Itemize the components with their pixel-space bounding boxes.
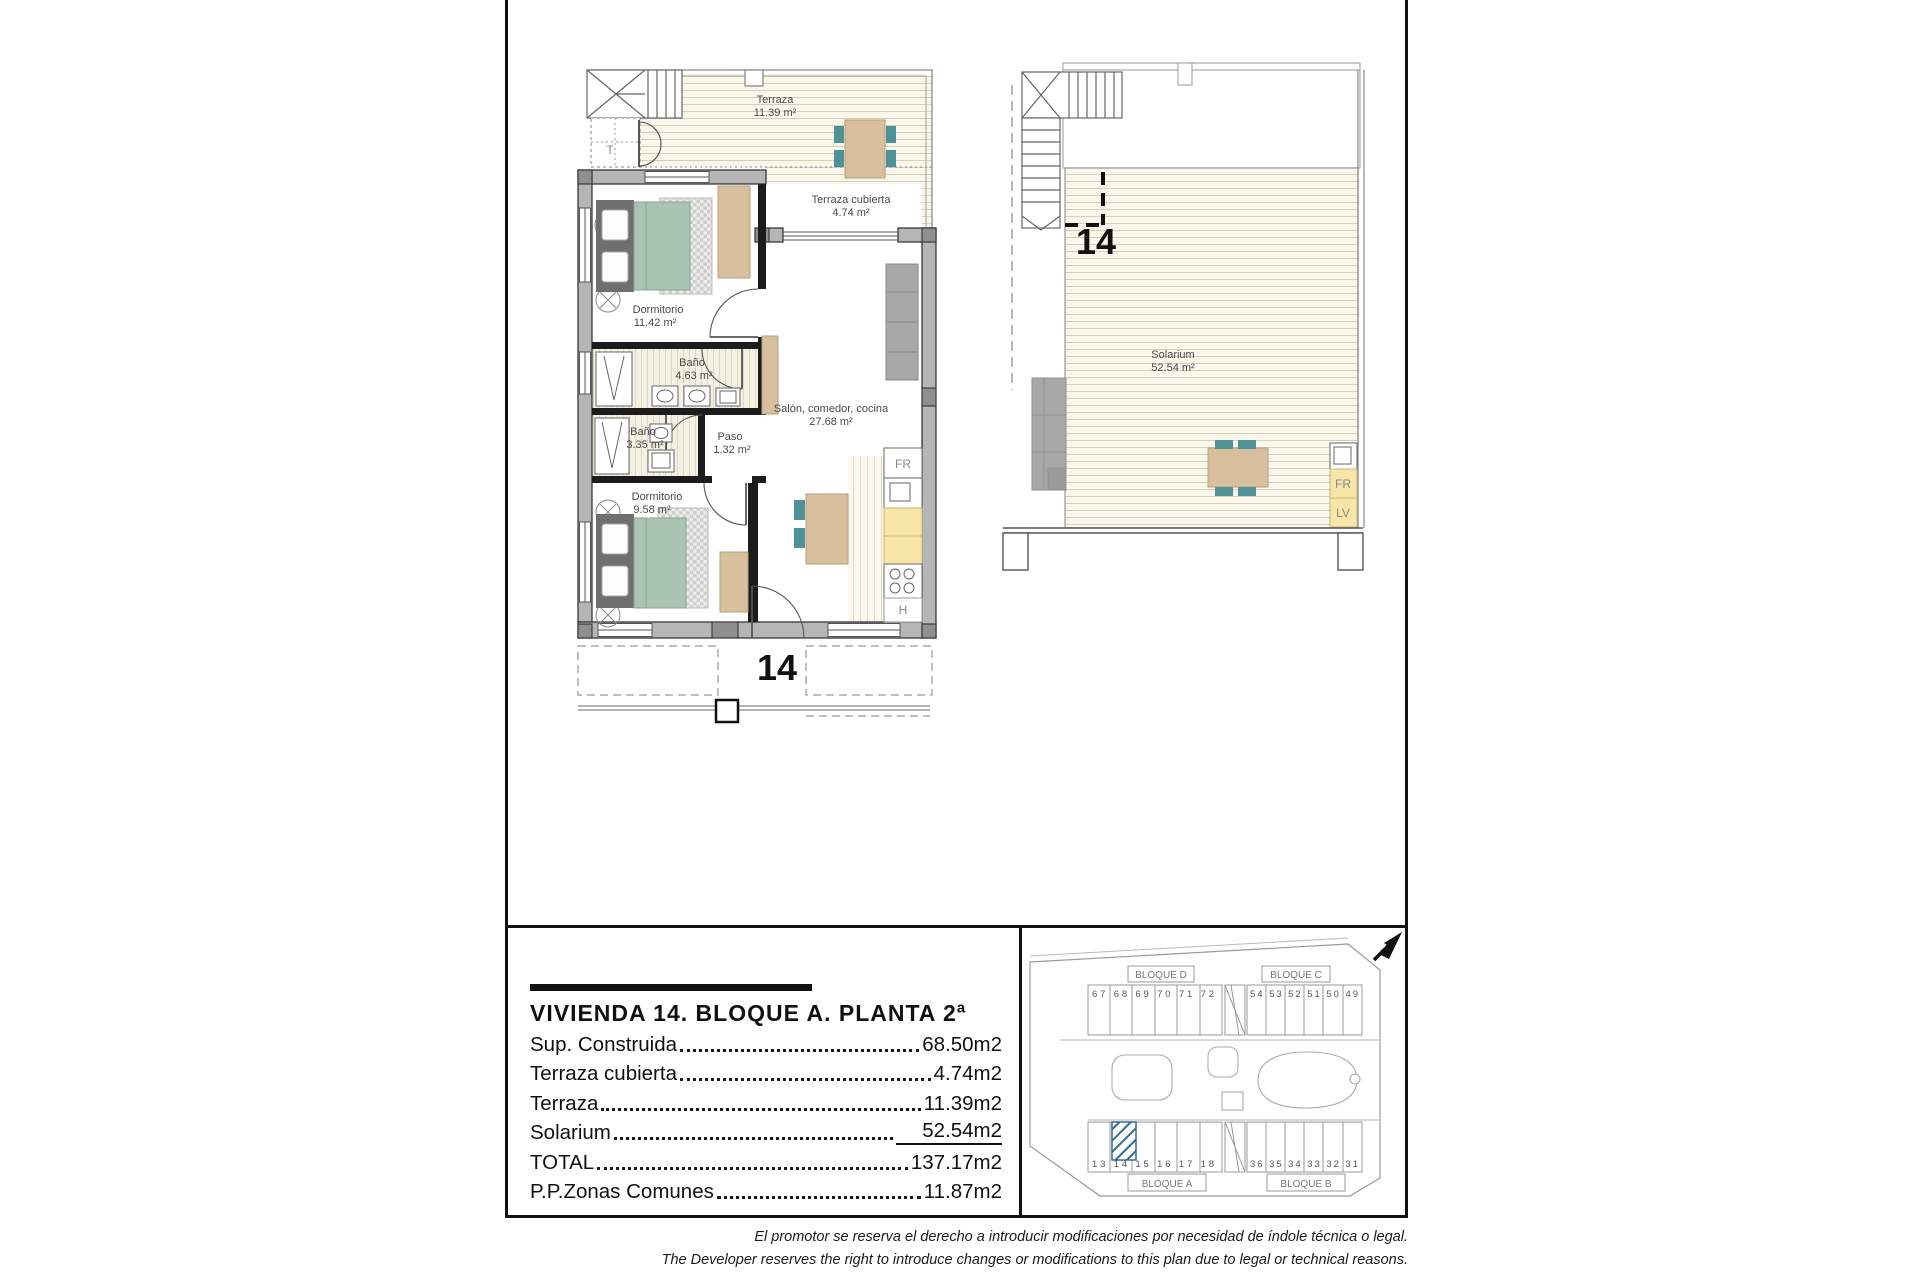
block-c-units: 54 53 52 51 50 49 <box>1250 989 1358 1000</box>
chair <box>1215 440 1233 449</box>
svg-text:Baño: Baño <box>679 357 705 369</box>
pillow <box>602 210 628 240</box>
wardrobe <box>720 552 748 612</box>
bedroom1-furniture <box>596 186 750 294</box>
stair-t-label: T <box>606 143 614 157</box>
dotted-leader <box>680 1049 919 1052</box>
main-plan-unit-number: 14 <box>757 647 797 688</box>
kitchen-units <box>884 448 922 622</box>
svg-text:27.68 m²: 27.68 m² <box>809 416 853 428</box>
adjacent-unit-outline <box>578 646 932 722</box>
surface-row: Sup. Construida 68.50m2 <box>530 1027 1002 1057</box>
chair <box>834 150 844 167</box>
wardrobe <box>718 186 750 278</box>
surface-row-label: Terraza cubierta <box>530 1062 677 1086</box>
block-c-label: BLOQUE C <box>1270 970 1322 981</box>
page-title: VIVIENDA 14. BLOQUE A. PLANTA 2ª <box>530 1000 1002 1027</box>
chair <box>794 528 805 548</box>
pillow <box>602 252 628 282</box>
dining-table <box>1208 448 1268 487</box>
north-arrow-icon <box>1374 932 1402 960</box>
surface-row-label: P.P.Zonas Comunes <box>530 1180 714 1204</box>
highlighted-unit-14 <box>1112 1122 1136 1160</box>
surface-row-value: 11.87m2 <box>924 1180 1002 1204</box>
outdoor-sofa-corner <box>1048 468 1066 490</box>
svg-text:Paso: Paso <box>717 431 742 443</box>
chair <box>1238 440 1256 449</box>
block-a-label: BLOQUE A <box>1142 1179 1193 1190</box>
solarium-base <box>1003 528 1363 570</box>
surface-row-label: TOTAL <box>530 1151 594 1175</box>
dotted-leader <box>601 1108 920 1111</box>
chair <box>834 126 844 143</box>
surface-row: Solarium 52.54m2 <box>530 1116 1002 1146</box>
chair <box>1215 487 1233 496</box>
surface-row-value: 4.74m2 <box>934 1062 1002 1086</box>
solarium-plan: 14 FR LV Solarium 52.54 m <box>995 38 1415 638</box>
fridge-label: FR <box>1335 477 1351 491</box>
svg-text:11.42 m²: 11.42 m² <box>634 317 677 329</box>
surface-row-label: Solarium <box>530 1121 611 1145</box>
surface-row: P.P.Zonas Comunes 11.87m2 <box>530 1175 1002 1205</box>
block-a-units: 13 14 15 16 17 18 <box>1092 1159 1214 1170</box>
stair-cores <box>1225 985 1245 1172</box>
disclaimer-es: El promotor se reserva el derecho a intr… <box>600 1226 1408 1249</box>
bed-mattress <box>634 202 690 290</box>
plan-sheet: T <box>0 0 1920 1280</box>
surface-row-label: Sup. Construida <box>530 1033 677 1057</box>
surface-row: TOTAL 137.17m2 <box>530 1145 1002 1175</box>
svg-text:Terraza cubierta: Terraza cubierta <box>812 194 892 206</box>
svg-text:Dormitorio: Dormitorio <box>632 491 683 503</box>
site-plan: BLOQUE D BLOQUE C BLOQUE A BLOQUE B 67 6… <box>1022 927 1405 1216</box>
solarium-area: 52.54 m² <box>1151 362 1195 374</box>
dotted-leader <box>614 1137 893 1140</box>
surface-row-value: 137.17m2 <box>911 1151 1002 1175</box>
dining-table <box>806 494 848 564</box>
surface-row-value: 11.39m2 <box>924 1092 1002 1116</box>
svg-text:11.39 m²: 11.39 m² <box>754 107 797 119</box>
chair <box>886 126 896 143</box>
hob-label: H <box>899 603 908 617</box>
pillow <box>602 566 628 596</box>
surface-row-value: 52.54m2 <box>896 1119 1002 1145</box>
dotted-leader <box>597 1167 908 1170</box>
chair <box>794 500 805 520</box>
svg-text:Baño: Baño <box>630 426 656 438</box>
svg-text:3.35 m²: 3.35 m² <box>626 439 664 451</box>
solarium-unit-number: 14 <box>1076 221 1116 262</box>
surface-row-value: 68.50m2 <box>922 1033 1002 1057</box>
surface-row-label: Terraza <box>530 1092 598 1116</box>
dotted-leader <box>717 1196 921 1199</box>
fridge-label: FR <box>895 457 911 471</box>
surface-row: Terraza 11.39m2 <box>530 1086 1002 1116</box>
svg-text:1.32 m²: 1.32 m² <box>713 444 751 456</box>
dotted-leader <box>680 1078 931 1081</box>
chair <box>1238 487 1256 496</box>
solarium-label: Solarium <box>1151 349 1194 361</box>
block-d-label: BLOQUE D <box>1135 970 1187 981</box>
svg-text:Salón, comedor, cocina: Salón, comedor, cocina <box>774 403 889 415</box>
main-floor-plan: T <box>500 40 960 740</box>
disclaimer-en: The Developer reserves the right to intr… <box>600 1249 1408 1272</box>
chair <box>886 150 896 167</box>
block-b-units: 36 35 34 33 32 31 <box>1250 1159 1358 1170</box>
svg-text:4.74 m²: 4.74 m² <box>832 207 870 219</box>
surface-table: VIVIENDA 14. BLOQUE A. PLANTA 2ª Sup. Co… <box>530 984 1002 1204</box>
title-rule <box>530 984 812 991</box>
disclaimer: El promotor se reserva el derecho a intr… <box>600 1226 1408 1272</box>
pool-area <box>1112 1047 1360 1110</box>
block-d-units: 67 68 69 70 71 72 <box>1092 989 1214 1000</box>
svg-text:Terraza: Terraza <box>757 94 795 106</box>
surface-row: Terraza cubierta 4.74m2 <box>530 1057 1002 1087</box>
terrace-table <box>845 120 885 178</box>
svg-text:4.63 m²: 4.63 m² <box>675 370 713 382</box>
svg-text:Dormitorio: Dormitorio <box>633 304 684 316</box>
pillow <box>602 524 628 554</box>
block-b-label: BLOQUE B <box>1280 1179 1331 1190</box>
dishwasher-label: LV <box>1336 506 1350 520</box>
svg-text:9.58 m²: 9.58 m² <box>633 504 671 516</box>
bed-mattress <box>634 518 686 608</box>
